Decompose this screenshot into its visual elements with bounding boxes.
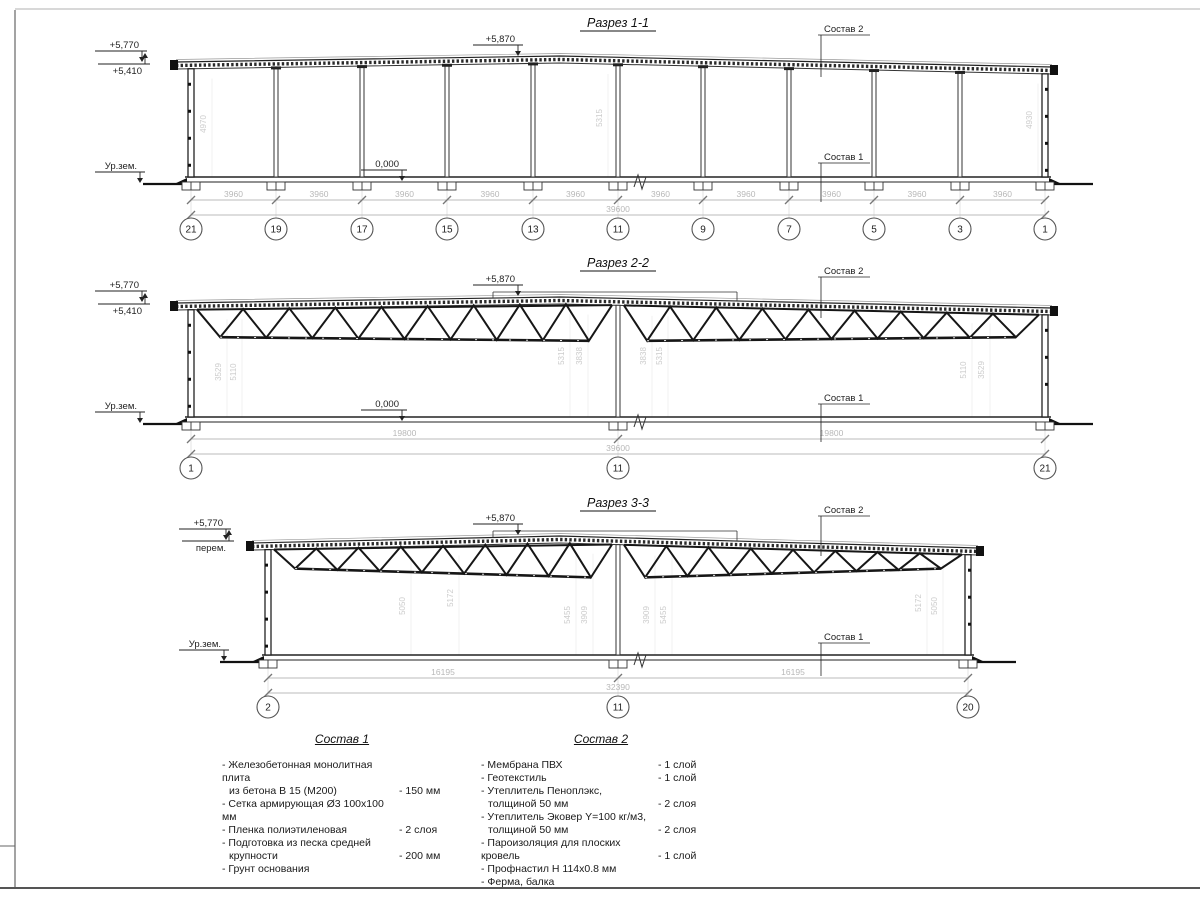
legend-item: - Пароизоляция для плоских кровель - 1 с… <box>481 837 721 863</box>
roof-end-cap-left <box>170 301 178 311</box>
bay-dimension: 16195 <box>781 667 805 677</box>
elevation-label: +5,870 <box>486 274 515 285</box>
axis-number: 5 <box>871 225 877 236</box>
elevation-arrow-down-icon <box>137 418 143 423</box>
legend-item: - Геотекстиль - 1 слой <box>481 772 721 785</box>
legend-item: - Ферма, балка <box>481 876 721 889</box>
legend-item-line2: толщиной 50 мм <box>481 798 658 811</box>
bay-dimension: 3960 <box>310 189 329 199</box>
column-cap <box>357 65 367 68</box>
elevation-arrow-down-icon <box>223 535 229 540</box>
legend-item-value: - 1 слой <box>658 759 718 772</box>
vertical-dimension: 3529 <box>977 361 986 379</box>
legend-item-line1: - Подготовка из песка средней <box>222 837 399 850</box>
column-cap <box>955 71 965 74</box>
legend-item-value: - 150 мм <box>399 785 459 798</box>
vertical-dimension: 3529 <box>214 363 223 381</box>
legend-item-line1: - Пленка полиэтиленовая <box>222 824 399 837</box>
wall-tie-mark <box>265 591 268 594</box>
legend-item-value: - 200 мм <box>399 850 459 863</box>
wall-tie-mark <box>968 596 971 599</box>
wall-tie-mark <box>968 569 971 572</box>
elevation-label: +5,770 <box>110 280 139 291</box>
axis-number: 21 <box>1039 464 1051 475</box>
vertical-dimension: 5455 <box>659 606 668 624</box>
axis-number: 9 <box>700 225 706 236</box>
elevation-arrow-down-icon <box>399 176 405 181</box>
axis-number: 1 <box>1042 225 1048 236</box>
wall-tie-mark <box>188 324 191 327</box>
wall-tie-mark <box>265 645 268 648</box>
wall-tie-mark <box>265 618 268 621</box>
column <box>274 67 278 177</box>
column <box>616 305 620 417</box>
elevation-label: Ур.зем. <box>189 639 221 650</box>
bay-dimension: 3960 <box>993 189 1012 199</box>
column <box>787 68 791 177</box>
legend-item: - Подготовка из песка средней крупности … <box>222 837 462 863</box>
legend-sostav-1: Состав 1 - Железобетонная монолитная пли… <box>222 733 462 876</box>
axis-number: 19 <box>270 225 282 236</box>
elevation-arrow-up-icon <box>142 53 148 58</box>
composition-label: Состав 1 <box>824 632 863 643</box>
vertical-dimension: 4970 <box>199 115 208 133</box>
elevation-label: +5,410 <box>113 66 142 77</box>
legend-item-line2: из бетона В 15 (М200) <box>222 785 399 798</box>
total-dimension: 39600 <box>606 204 630 214</box>
wall-tie-mark <box>1045 329 1048 332</box>
column-cap <box>271 66 281 69</box>
wall-tie-mark <box>188 405 191 408</box>
legend-item-line2: толщиной 50 мм <box>481 824 658 837</box>
legend-item-line1: - Мембрана ПВХ <box>481 759 658 772</box>
legend-sostav-2: Состав 2 - Мембрана ПВХ - 1 слой - Геоте… <box>481 733 721 889</box>
vertical-dimension: 5050 <box>398 597 407 615</box>
roof-deck-band <box>176 301 1052 312</box>
elevation-label: +5,870 <box>486 34 515 45</box>
column <box>616 545 620 655</box>
legend-item-value: - 2 слоя <box>658 824 718 837</box>
roof-end-cap-right <box>1050 306 1058 316</box>
vertical-dimension: 5315 <box>595 109 604 127</box>
section-s3: 1619516195323902112050505172545539093909… <box>179 496 1016 718</box>
elevation-label: Ур.зем. <box>105 161 137 172</box>
legend-item-value: - 1 слой <box>658 850 718 863</box>
elevation-label: +5,770 <box>110 40 139 51</box>
vertical-dimension: 5172 <box>446 589 455 607</box>
wall-tie-mark <box>188 137 191 140</box>
legend-title: Состав 1 <box>222 733 462 746</box>
wall-tie-mark <box>1045 142 1048 145</box>
legend-item-line1: - Утеплитель Эковер Y=100 кг/м3, <box>481 811 658 824</box>
elevation-arrow-down-icon <box>399 416 405 421</box>
roof-end-cap-left <box>170 60 178 70</box>
bay-dimension: 3960 <box>651 189 670 199</box>
legend-item-line1: - Грунт основания <box>222 863 399 876</box>
elevation-label: +5,410 <box>113 306 142 317</box>
legend-item-line1: - Утеплитель Пеноплэкс, <box>481 785 658 798</box>
axis-number: 21 <box>185 225 197 236</box>
wall-tie-mark <box>188 164 191 167</box>
legend-item: - Пленка полиэтиленовая - 2 слоя <box>222 824 462 837</box>
wall-tie-mark <box>1045 383 1048 386</box>
vertical-dimension: 3838 <box>575 347 584 365</box>
composition-label: Состав 1 <box>824 393 863 404</box>
legend-item-line1: - Пароизоляция для плоских кровель <box>481 837 658 863</box>
axis-number: 13 <box>527 225 539 236</box>
composition-label: Состав 2 <box>824 24 863 35</box>
vertical-dimension: 3838 <box>639 347 648 365</box>
roof-end-cap-left <box>246 541 254 551</box>
elevation-label: 0,000 <box>375 399 399 410</box>
column <box>872 70 876 177</box>
vertical-dimension: 3909 <box>642 606 651 624</box>
roof-end-cap-right <box>1050 65 1058 75</box>
legend-item-value: - 2 слоя <box>658 798 718 811</box>
legend-item-value: - 1 слой <box>658 772 718 785</box>
composition-label: Состав 2 <box>824 266 863 277</box>
legend-item: - Утеплитель Эковер Y=100 кг/м3, толщино… <box>481 811 721 837</box>
bay-dimension: 3960 <box>566 189 585 199</box>
axis-number: 15 <box>441 225 453 236</box>
column <box>531 63 535 177</box>
bay-dimension: 3960 <box>908 189 927 199</box>
legend-item: - Железобетонная монолитная плита из бет… <box>222 759 462 798</box>
truss-bottom-chord <box>220 337 589 341</box>
legend-title: Состав 2 <box>481 733 721 746</box>
axis-number: 2 <box>265 703 271 714</box>
roof-end-cap-right <box>976 546 984 556</box>
vertical-dimension: 5455 <box>563 606 572 624</box>
bay-dimension: 3960 <box>395 189 414 199</box>
column-cap <box>784 67 794 70</box>
axis-number: 20 <box>962 703 974 714</box>
section-title: Разрез 2-2 <box>587 256 649 270</box>
bay-dimension: 19800 <box>820 428 844 438</box>
column-cap <box>613 63 623 66</box>
elevation-label: 0,000 <box>375 159 399 170</box>
bay-dimension: 16195 <box>431 667 455 677</box>
vertical-dimension: 4930 <box>1025 111 1034 129</box>
legend-item: - Профнастил Н 114х0.8 мм <box>481 863 721 876</box>
roof-screed-line <box>176 54 1052 65</box>
sections-graphics: 3960396039603960396039603960396039603960… <box>95 16 1093 718</box>
vertical-dimension: 5110 <box>229 363 238 381</box>
vertical-dimension: 5110 <box>959 361 968 379</box>
legend-item: - Грунт основания <box>222 863 462 876</box>
wall-tie-mark <box>188 110 191 113</box>
column <box>958 72 962 177</box>
bay-dimension: 3960 <box>737 189 756 199</box>
column <box>360 66 364 177</box>
section-title: Разрез 1-1 <box>587 16 649 30</box>
wall-tie-mark <box>188 83 191 86</box>
legend-item: - Мембрана ПВХ - 1 слой <box>481 759 721 772</box>
axis-number: 7 <box>786 225 792 236</box>
vertical-dimension: 5172 <box>914 594 923 612</box>
column-cap <box>869 69 879 72</box>
vertical-dimension: 5050 <box>930 597 939 615</box>
legend-item-line2: крупности <box>222 850 399 863</box>
roof-screed-line <box>252 534 978 546</box>
section-s2: 1980019800396001112135295110531538383838… <box>95 256 1093 479</box>
section-s1: 3960396039603960396039603960396039603960… <box>95 16 1093 240</box>
legend-item-value: - 2 слоя <box>399 824 459 837</box>
bay-dimension: 3960 <box>224 189 243 199</box>
wall-tie-mark <box>188 351 191 354</box>
truss-bottom-chord <box>647 337 1016 341</box>
elevation-label: +5,770 <box>194 518 223 529</box>
wall-tie-mark <box>1045 88 1048 91</box>
vertical-dimension: 3909 <box>580 606 589 624</box>
axis-number: 11 <box>613 464 624 475</box>
column <box>701 66 705 177</box>
legend-item-line1: - Ферма, балка <box>481 876 658 889</box>
elevation-label: перем. <box>196 543 226 554</box>
column <box>445 65 449 177</box>
vertical-dimension: 5315 <box>655 347 664 365</box>
composition-label: Состав 2 <box>824 505 863 516</box>
legend-item-line1: - Профнастил Н 114х0.8 мм <box>481 863 658 876</box>
elevation-label: Ур.зем. <box>105 401 137 412</box>
total-dimension: 39600 <box>606 443 630 453</box>
vertical-dimension: 5315 <box>557 347 566 365</box>
total-dimension: 32390 <box>606 682 630 692</box>
legend-item-line1: - Железобетонная монолитная плита <box>222 759 399 785</box>
axis-number: 11 <box>613 225 624 236</box>
axis-number: 11 <box>613 703 624 714</box>
wall-tie-mark <box>968 623 971 626</box>
wall-tie-mark <box>188 378 191 381</box>
wall-tie-mark <box>1045 115 1048 118</box>
legend-item-line1: - Геотекстиль <box>481 772 658 785</box>
elevation-arrow-down-icon <box>137 178 143 183</box>
elevation-arrow-up-icon <box>226 530 232 535</box>
axis-number: 1 <box>188 464 194 475</box>
roof-screed-line <box>176 295 1052 306</box>
bay-dimension: 19800 <box>393 428 417 438</box>
bay-dimension: 3960 <box>481 189 500 199</box>
column-cap <box>698 65 708 68</box>
wall-tie-mark <box>1045 169 1048 172</box>
wall-tie-mark <box>265 564 268 567</box>
legend-item: - Сетка армирующая Ø3 100x100 мм <box>222 798 462 824</box>
elevation-label: +5,870 <box>486 513 515 524</box>
axis-number: 3 <box>957 225 963 236</box>
elevation-arrow-up-icon <box>142 293 148 298</box>
axis-number: 17 <box>356 225 368 236</box>
legend-item-line1: - Сетка армирующая Ø3 100x100 мм <box>222 798 399 824</box>
drawing-sheet: { "drawing": { "sections": { "s1": { "ti… <box>0 0 1200 900</box>
column <box>616 64 620 177</box>
elevation-arrow-down-icon <box>221 656 227 661</box>
composition-label: Состав 1 <box>824 152 863 163</box>
wall-tie-mark <box>1045 356 1048 359</box>
bay-dimension: 3960 <box>822 189 841 199</box>
column-cap <box>528 62 538 65</box>
elevation-arrow-down-icon <box>515 51 521 56</box>
column-cap <box>442 64 452 67</box>
section-title: Разрез 3-3 <box>587 496 649 510</box>
legend-item: - Утеплитель Пеноплэкс, толщиной 50 мм -… <box>481 785 721 811</box>
